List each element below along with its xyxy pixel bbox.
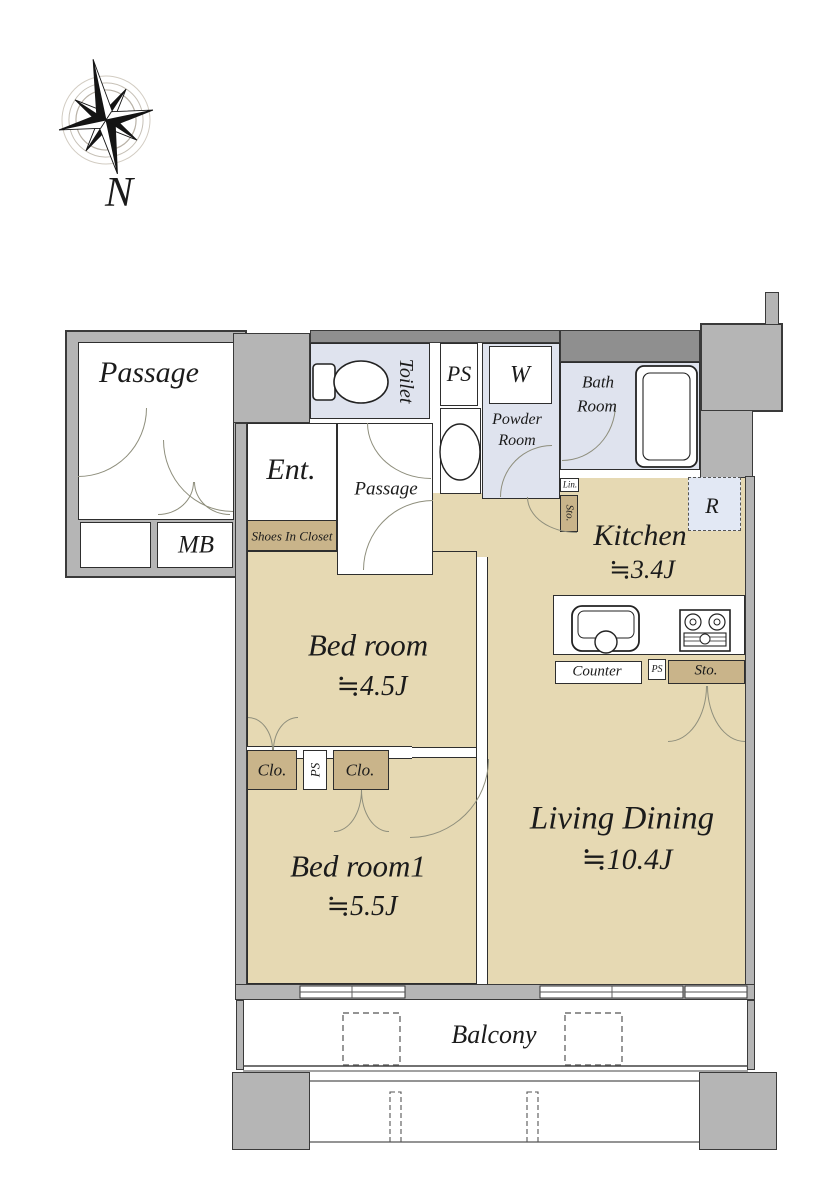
bedroom-a-area-label: ≒4.5J: [337, 673, 408, 701]
room-hallway: [433, 493, 487, 557]
linen-label: Lin.: [563, 481, 577, 490]
compass-north-label: N: [105, 172, 133, 214]
room-washbasin: [440, 408, 481, 494]
closet-right-label: Clo.: [346, 762, 375, 779]
kitchen-label: Kitchen: [593, 521, 686, 551]
room-kitchen-living: [485, 478, 745, 984]
powder-room-label-1: Powder: [492, 412, 542, 428]
closet-ps-label: PS: [309, 763, 322, 777]
entrance-label: Ent.: [266, 455, 315, 485]
common-passage-label: Passage: [99, 358, 199, 388]
wall-balcony-right: [747, 1000, 755, 1070]
closet-left-label: Clo.: [258, 762, 287, 779]
living-dining-label: Living Dining: [530, 803, 714, 836]
lower-ledge: [310, 1081, 699, 1142]
storage-side-label: Sto.: [564, 505, 575, 522]
living-dining-area-label: ≒10.4J: [582, 845, 673, 875]
floor-plan: N Passage MB Ent. Shoes In Closet Passag…: [0, 0, 817, 1200]
wall-lower-right-block: [699, 1072, 777, 1150]
wall-chimney: [765, 292, 779, 325]
room-common-box: [80, 522, 151, 568]
kitchen-storage-label: Sto.: [695, 664, 718, 679]
kitchen-ps-label: PS: [651, 665, 662, 675]
wall-right-block: [700, 410, 753, 478]
bedroom-a-label: Bed room: [308, 630, 428, 661]
wall-top: [310, 330, 560, 343]
compass-rose: [46, 49, 164, 183]
wall-lower-left-block: [232, 1072, 310, 1150]
kitchen-area-label: ≒3.4J: [609, 557, 675, 583]
bedroom-b-area-label: ≒5.5J: [327, 893, 398, 921]
wall-right: [745, 476, 755, 986]
kitchen-counter: [553, 595, 745, 655]
shoes-closet-label: Shoes In Closet: [252, 530, 333, 543]
pipe-space-top-label: PS: [447, 363, 471, 385]
balcony-rail: [243, 1066, 748, 1071]
wall-left: [235, 423, 247, 986]
counter-label: Counter: [572, 665, 621, 680]
balcony-label: Balcony: [451, 1022, 536, 1048]
powder-room-label-2: Room: [498, 433, 535, 449]
toilet-label: Toilet: [396, 359, 416, 404]
wall-top-right-block: [700, 323, 783, 412]
wall-bottom: [235, 984, 755, 1000]
meter-box-label: MB: [178, 533, 214, 558]
refrigerator-label: R: [705, 495, 718, 517]
bath-room-label-2: Room: [577, 398, 617, 415]
bedroom-b-label: Bed room1: [290, 851, 426, 882]
inner-passage-label: Passage: [354, 480, 417, 499]
washer-label: W: [510, 363, 530, 387]
wall-balcony-left: [236, 1000, 244, 1070]
wall-top-bath: [560, 330, 700, 362]
balcony-hatch-left: [343, 1013, 400, 1065]
wall-above-entrance: [233, 333, 310, 423]
balcony-hatch-right: [565, 1013, 622, 1065]
bath-room-label-1: Bath: [582, 374, 614, 391]
